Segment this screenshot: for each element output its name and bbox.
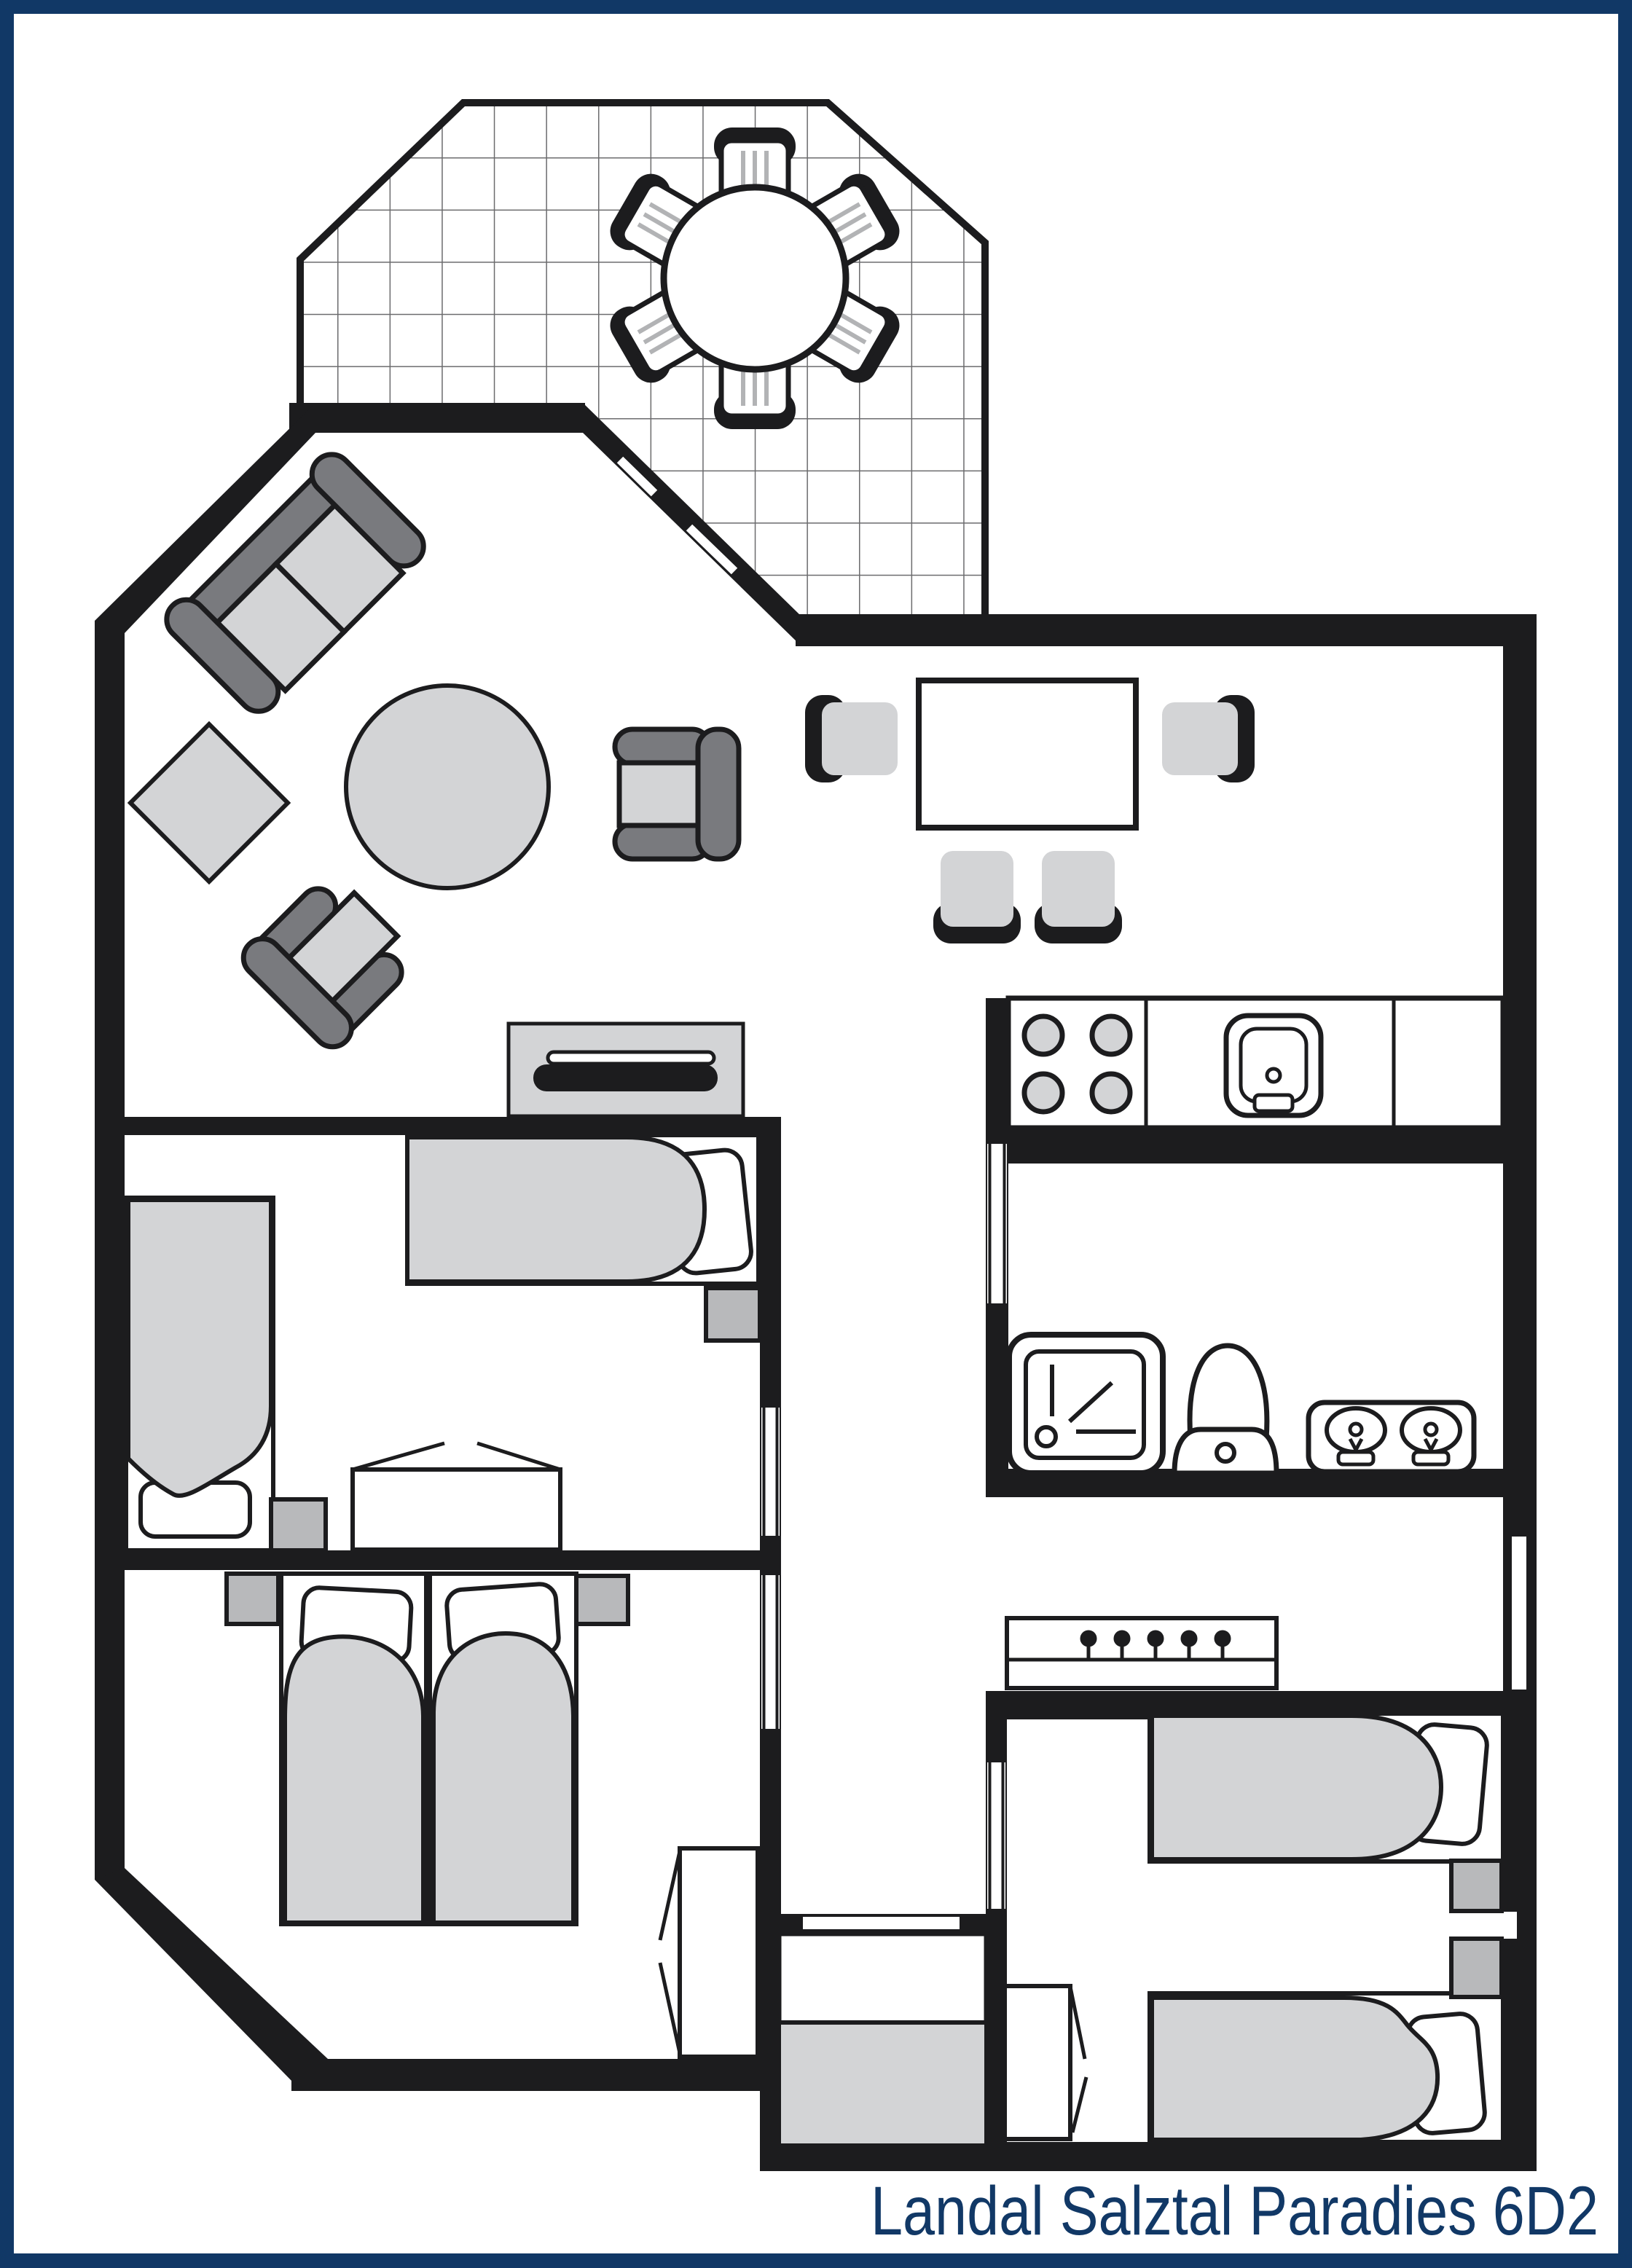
svg-text:Landal Salztal Paradies 6D2: Landal Salztal Paradies 6D2 bbox=[871, 2173, 1598, 2250]
